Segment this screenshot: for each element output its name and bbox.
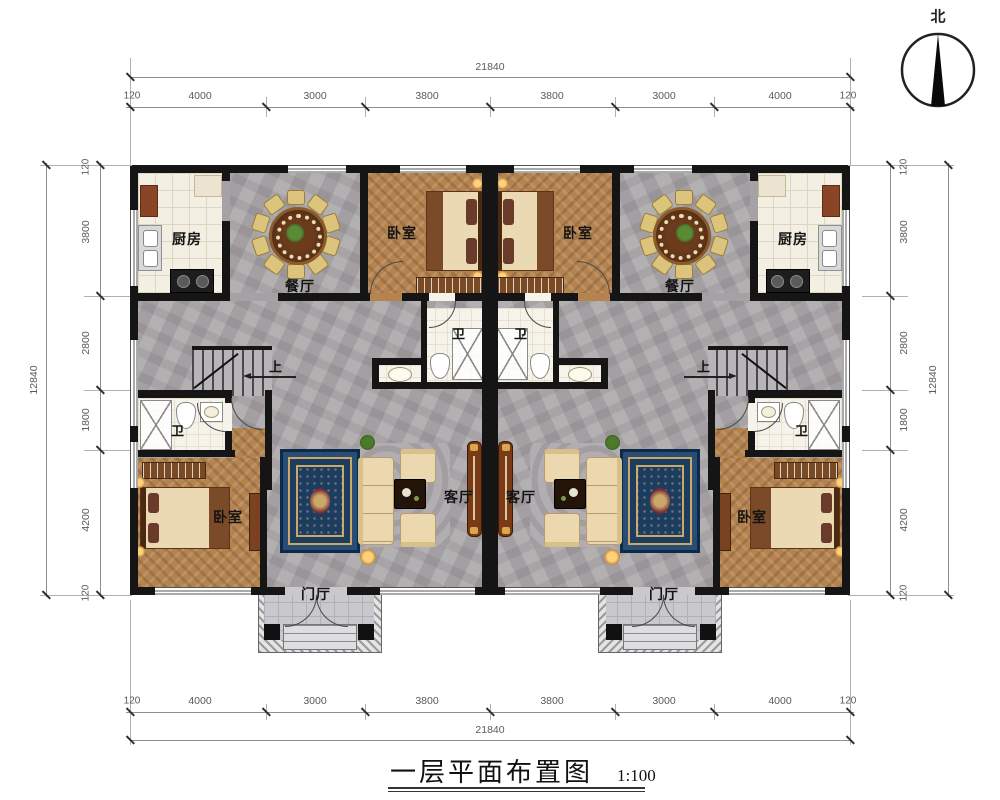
dim-left-seg-line <box>100 163 101 597</box>
stairs-break-line <box>741 353 786 389</box>
porch-column <box>606 624 622 640</box>
window-left-bath <box>842 442 850 488</box>
dim-left-seg: 2800 <box>80 331 92 354</box>
window-bottom-bedroom <box>155 587 251 595</box>
kitchen-sink <box>818 225 842 271</box>
bedroom-top-label-left: 卧室 <box>387 223 417 243</box>
dining-label-right: 餐厅 <box>665 276 695 296</box>
bed-top <box>426 191 484 271</box>
wall-dining-bedroom <box>360 173 368 293</box>
fridge <box>194 175 222 197</box>
dim-top-seg: 4000 <box>188 90 211 102</box>
dim-top-total: 21840 <box>475 61 504 73</box>
wall-bathlow-bottom <box>745 450 842 457</box>
wall-dining-bedroom <box>612 173 620 293</box>
kitchen-cabinet <box>822 185 840 217</box>
stairs-up-label-left: 上 <box>269 357 283 376</box>
dining-label-left: 餐厅 <box>285 276 315 296</box>
wall-center-party <box>490 165 498 595</box>
foyer-label-right: 门厅 <box>649 584 679 604</box>
ext-line <box>850 58 851 165</box>
sofa <box>586 457 622 545</box>
wall-center-party <box>482 165 490 595</box>
stairs-arrow-head-left <box>243 373 251 379</box>
dim-top-seg: 3800 <box>415 90 438 102</box>
tv-cabinet-bedroom <box>719 493 731 551</box>
stairs-arrow-head-right <box>729 373 737 379</box>
title-underline <box>388 791 645 792</box>
dim-right-total-line <box>948 163 949 597</box>
ext-line <box>862 390 908 391</box>
kitchen-label-left: 厨房 <box>172 229 202 249</box>
window-left-hall <box>130 340 138 426</box>
ext-line <box>862 450 908 451</box>
dining-centerpiece <box>286 224 304 242</box>
stairs <box>708 346 788 396</box>
opening-dining-hall <box>230 293 278 301</box>
armchair <box>400 449 436 483</box>
ext-line <box>130 58 131 165</box>
dining-chair <box>709 212 729 234</box>
vestibule-door-arc <box>231 398 263 430</box>
persian-rug <box>280 449 360 553</box>
stairs-arrow-right <box>684 376 730 378</box>
shower <box>808 400 840 450</box>
ext-line <box>84 296 130 297</box>
stairs-arrow-left <box>250 376 296 378</box>
dim-right-seg: 3800 <box>898 220 910 243</box>
bedroom-top-label-right: 卧室 <box>563 223 593 243</box>
title-block: 一层平面布置图1:100 <box>390 752 656 789</box>
window-left-hall <box>842 340 850 426</box>
coffee-table <box>554 479 586 509</box>
opening-kitchen-dining <box>222 181 230 221</box>
basin <box>568 367 592 382</box>
persian-rug <box>620 449 700 553</box>
floor-plan-canvas: 厨房 厨房 餐厅 餐厅 卧室 卧室 卫 卫 卫 卫 卧室 卧室 客厅 客厅 门厅… <box>0 0 1000 800</box>
opening-bathlow-door <box>225 403 232 431</box>
wardrobe-top <box>416 277 484 294</box>
dim-top-seg: 3000 <box>303 90 326 102</box>
wall-niche-bottom <box>372 382 482 389</box>
bath-mid-label-left: 卫 <box>452 324 466 343</box>
compass-needle <box>931 34 945 106</box>
window-bottom-living <box>505 587 600 595</box>
opening-dining-hall <box>702 293 750 301</box>
porch-column <box>700 624 716 640</box>
dining-chair <box>251 235 271 257</box>
dim-top-seg: 3800 <box>540 90 563 102</box>
window-bottom-bedroom <box>729 587 825 595</box>
ext-line <box>862 296 908 297</box>
wall-bathlow-bottom <box>138 450 235 457</box>
vestibule-door-arc <box>717 398 749 430</box>
wardrobe-top <box>496 277 564 294</box>
wall-hall-bath <box>750 390 842 398</box>
window-top-dining <box>634 165 692 173</box>
title-scale: 1:100 <box>617 766 656 785</box>
stairs <box>192 346 272 396</box>
dim-top-seg: 3000 <box>652 90 675 102</box>
plant <box>605 435 620 450</box>
wall-bathmid-left <box>421 301 427 382</box>
wardrobe-bottom <box>774 462 838 479</box>
dining-chair <box>251 212 271 234</box>
basin <box>388 367 412 382</box>
armchair <box>544 449 580 483</box>
dim-top-seg: 4000 <box>768 90 791 102</box>
dim-bottom-seg: 120 <box>124 696 141 707</box>
armchair <box>544 513 580 547</box>
dim-bottom-seg: 3800 <box>415 695 438 707</box>
kitchen-label-right: 厨房 <box>778 229 808 249</box>
ext-line <box>84 450 130 451</box>
wall-niche-bottom <box>498 382 608 389</box>
dim-top-seg: 120 <box>840 91 857 102</box>
stairs-break-line <box>193 353 238 389</box>
stove <box>766 269 810 293</box>
wardrobe-bottom <box>142 462 206 479</box>
dim-right-seg: 120 <box>899 159 910 176</box>
bath-mid-label-right: 卫 <box>514 324 528 343</box>
sofa <box>358 457 394 545</box>
dim-left-total: 12840 <box>28 365 40 394</box>
dim-left-seg: 120 <box>81 585 92 602</box>
window-left-kitchen <box>130 210 138 286</box>
fridge <box>758 175 786 197</box>
dim-right-seg: 2800 <box>898 331 910 354</box>
dim-top-total-line <box>130 77 850 78</box>
ext-line <box>850 600 851 745</box>
dim-left-seg: 1800 <box>80 408 92 431</box>
dim-top-seg: 120 <box>124 91 141 102</box>
shower <box>140 400 172 450</box>
dim-bottom-seg: 4000 <box>188 695 211 707</box>
opening-kitchen-dining <box>750 181 758 221</box>
dim-right-total: 12840 <box>927 365 939 394</box>
page-title: 一层平面布置图 <box>390 758 593 787</box>
coffee-table <box>394 479 426 509</box>
armchair <box>400 513 436 547</box>
window-top-bedroom <box>400 165 466 173</box>
dim-bottom-seg: 3800 <box>540 695 563 707</box>
wall-bedroom2-right <box>713 457 720 587</box>
opening-bathmid-door <box>525 293 551 301</box>
opening-bedroom-top-door <box>578 293 610 301</box>
dim-bottom-total-line <box>130 740 850 741</box>
foyer-label-left: 门厅 <box>301 584 331 604</box>
porch-column <box>264 624 280 640</box>
stove <box>170 269 214 293</box>
bath-low-label-right: 卫 <box>795 421 809 440</box>
compass: 北 <box>893 6 983 118</box>
opening-bathmid-door <box>429 293 455 301</box>
dim-left-seg: 4200 <box>80 508 92 531</box>
bath-low-label-left: 卫 <box>171 421 185 440</box>
window-left-bath <box>130 442 138 488</box>
dim-right-seg: 1800 <box>898 408 910 431</box>
living-label-left: 客厅 <box>444 487 474 507</box>
dim-right-seg: 4200 <box>898 508 910 531</box>
wall-bathmid-left <box>553 301 559 382</box>
dim-right-seg: 120 <box>899 585 910 602</box>
dim-bottom-seg: 3000 <box>652 695 675 707</box>
dim-bottom-seg: 120 <box>840 696 857 707</box>
window-top-dining <box>288 165 346 173</box>
porch-steps <box>283 624 357 650</box>
kitchen-cabinet <box>140 185 158 217</box>
living-label-right: 客厅 <box>506 487 536 507</box>
nightstand-lamp <box>497 178 508 189</box>
bed-top <box>496 191 554 271</box>
kitchen-sink <box>138 225 162 271</box>
porch-column <box>358 624 374 640</box>
window-top-bedroom <box>514 165 580 173</box>
floor-lamp <box>604 549 620 565</box>
dining-chair <box>287 190 305 205</box>
dim-bottom-total: 21840 <box>475 724 504 736</box>
wall-hall-bath <box>138 390 230 398</box>
dim-right-seg-line <box>890 163 891 597</box>
compass-rose <box>893 24 983 116</box>
dim-bottom-seg: 4000 <box>768 695 791 707</box>
ext-line <box>130 600 131 745</box>
dining-centerpiece <box>676 224 694 242</box>
bedroom-bottom-label-right: 卧室 <box>737 507 767 527</box>
dim-bottom-seg: 3000 <box>303 695 326 707</box>
window-left-kitchen <box>842 210 850 286</box>
plant <box>360 435 375 450</box>
ext-line <box>84 390 130 391</box>
window-bottom-living <box>380 587 475 595</box>
dim-left-total-line <box>46 163 47 597</box>
wall-niche-top <box>372 358 423 365</box>
wall-bedroom2-right <box>260 457 267 587</box>
dining-chair <box>709 235 729 257</box>
title-underline <box>388 787 645 789</box>
bedroom-bottom-label-left: 卧室 <box>213 507 243 527</box>
opening-bedroom-top-door <box>370 293 402 301</box>
floor-lamp <box>360 549 376 565</box>
dim-left-seg: 3800 <box>80 220 92 243</box>
dining-chair <box>675 190 693 205</box>
porch-steps <box>623 624 697 650</box>
dim-left-seg: 120 <box>81 159 92 176</box>
stairs-up-label-right: 上 <box>697 357 711 376</box>
